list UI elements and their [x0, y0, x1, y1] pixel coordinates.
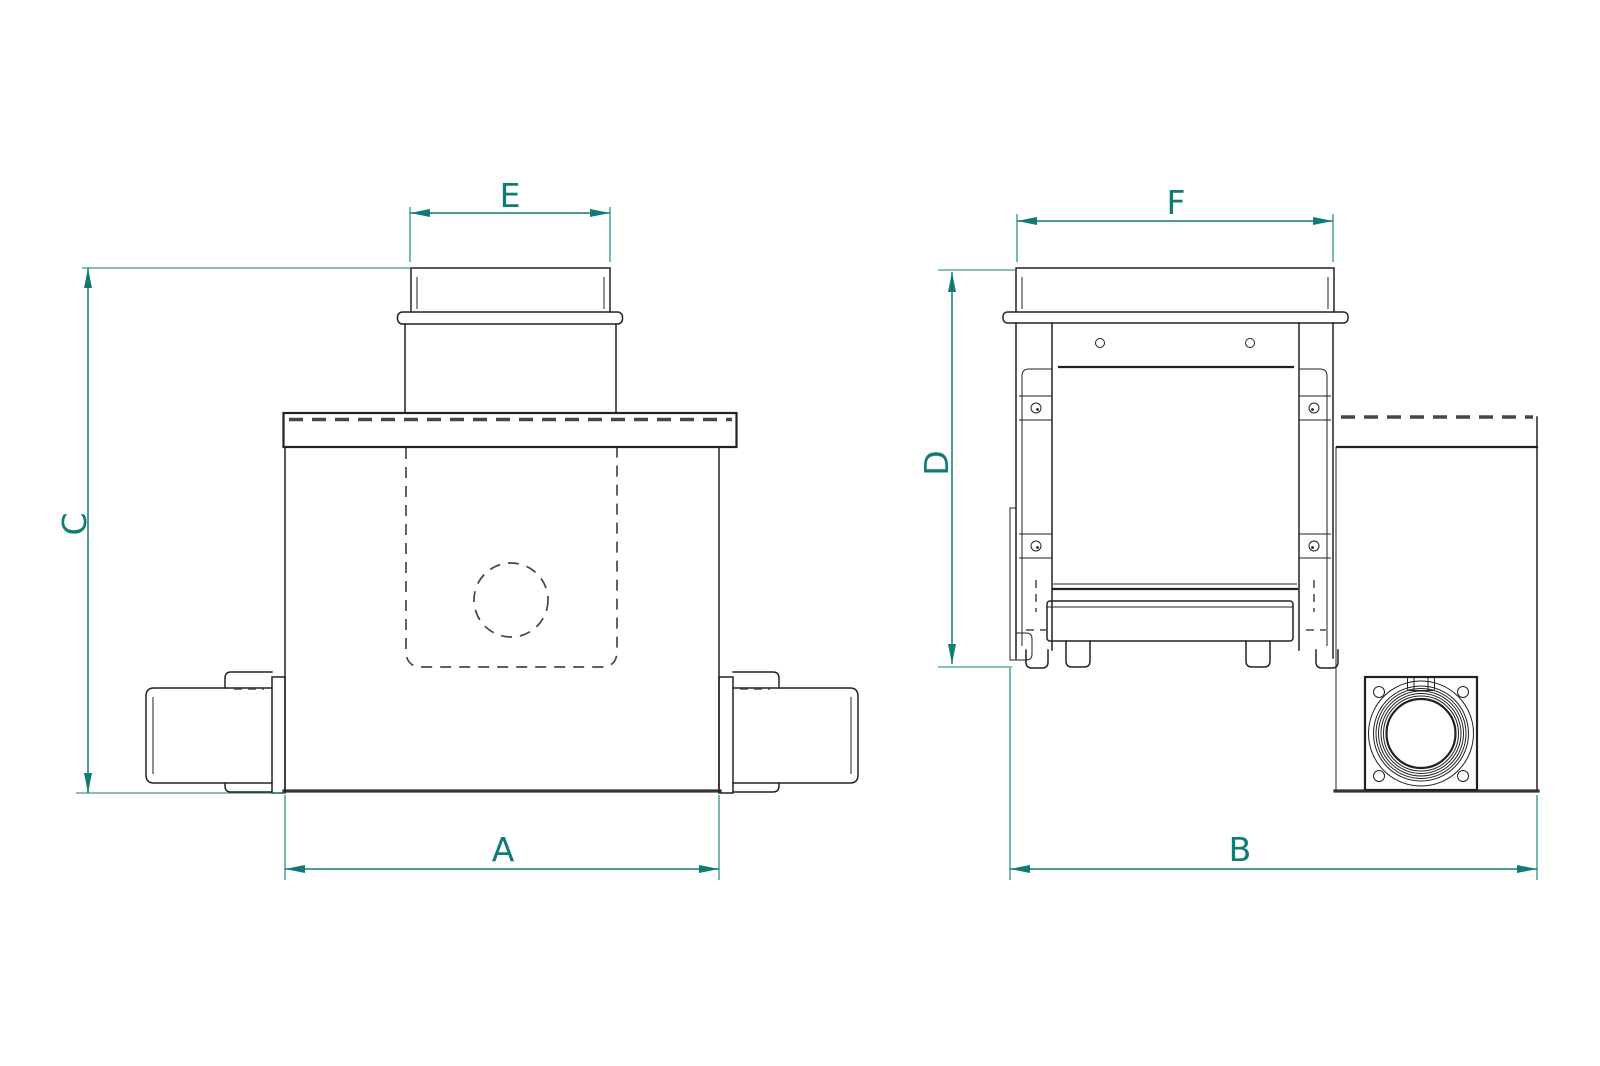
bolt-lower-right [1309, 541, 1319, 551]
dim-label-F: F [1167, 183, 1186, 222]
bolt-lower-left [1031, 541, 1041, 551]
dimension-C: C [55, 268, 411, 793]
dimension-A: A [285, 795, 719, 880]
dim-C-extension-lines [76, 268, 411, 793]
frame-hole-right [1246, 339, 1255, 348]
drawing-page: E F C D A [0, 0, 1600, 1066]
dim-E-extension-lines [410, 207, 610, 262]
dim-label-D: D [917, 450, 956, 475]
port-bolt-hole-bl [1374, 771, 1385, 782]
dim-label-C: C [55, 512, 94, 535]
dim-B-arrow-left [1010, 865, 1030, 873]
dimension-E: E [410, 176, 610, 262]
left-pipe-collar-top [225, 672, 272, 688]
inlet-flange [398, 312, 623, 324]
side-view [1003, 268, 1538, 791]
left-pipe-flange-plate [272, 677, 285, 793]
door-front-plate [1010, 508, 1016, 660]
left-pipe-collar-bottom [225, 783, 272, 792]
side-inlet-duct [1003, 268, 1348, 323]
front-right-port-pipe [719, 672, 858, 793]
dimensions: E F C D A [55, 176, 1537, 880]
inlet-collar-outline [411, 268, 610, 312]
bolt-upper-left [1031, 403, 1041, 413]
dim-E-arrow-left [410, 209, 430, 217]
front-inlet-duct [398, 268, 623, 413]
left-rail-bolt-plates [1019, 396, 1052, 558]
port-connector-rings [1369, 681, 1474, 786]
right-pipe-collar-bottom [733, 783, 779, 792]
dim-A-arrow-left [285, 865, 305, 873]
tray-foot-left [1066, 641, 1090, 667]
door-plate-latch [1016, 633, 1032, 660]
dim-A-arrow-right [699, 865, 719, 873]
front-left-port-pipe [146, 672, 285, 793]
right-pipe-body [733, 688, 858, 783]
dim-C-arrow-bottom [84, 773, 92, 793]
tray-foot-right [1246, 641, 1270, 667]
right-pipe-collar-top [733, 672, 779, 688]
bolt-upper-right [1309, 403, 1319, 413]
dim-E-arrow-right [590, 209, 610, 217]
dim-F-arrow-left [1017, 217, 1037, 225]
front-view [146, 268, 858, 793]
port-bolt-hole-tl [1374, 687, 1385, 698]
rail-foot-right [1316, 650, 1338, 668]
side-collar-outline [1016, 268, 1334, 312]
right-pipe-flange-plate [719, 677, 733, 793]
side-door-frame [1010, 323, 1338, 668]
dim-label-A: A [492, 830, 515, 869]
side-port-flange [1365, 677, 1477, 790]
dim-label-E: E [500, 176, 521, 215]
dimension-D: D [917, 270, 1016, 667]
dim-B-arrow-right [1517, 865, 1537, 873]
hidden-port-circle [474, 563, 548, 637]
technical-drawing-canvas: E F C D A [0, 0, 1600, 1066]
hidden-duct-outline [406, 448, 617, 667]
dim-D-arrow-top [948, 272, 956, 292]
dim-F-arrow-right [1313, 217, 1333, 225]
side-inlet-flange [1003, 312, 1348, 323]
front-box-body [284, 413, 737, 791]
dim-C-arrow-top [84, 268, 92, 288]
frame-hole-left [1096, 339, 1105, 348]
port-bolt-hole-br [1458, 771, 1469, 782]
right-rail-bolt-plates [1299, 396, 1331, 558]
port-bolt-hole-tr [1458, 687, 1469, 698]
dim-label-B: B [1229, 830, 1252, 869]
dim-D-arrow-bottom [948, 644, 956, 664]
dimension-F: F [1017, 183, 1333, 262]
port-bore [1387, 699, 1456, 768]
left-pipe-body [146, 688, 272, 783]
front-hidden-duct [406, 448, 617, 667]
